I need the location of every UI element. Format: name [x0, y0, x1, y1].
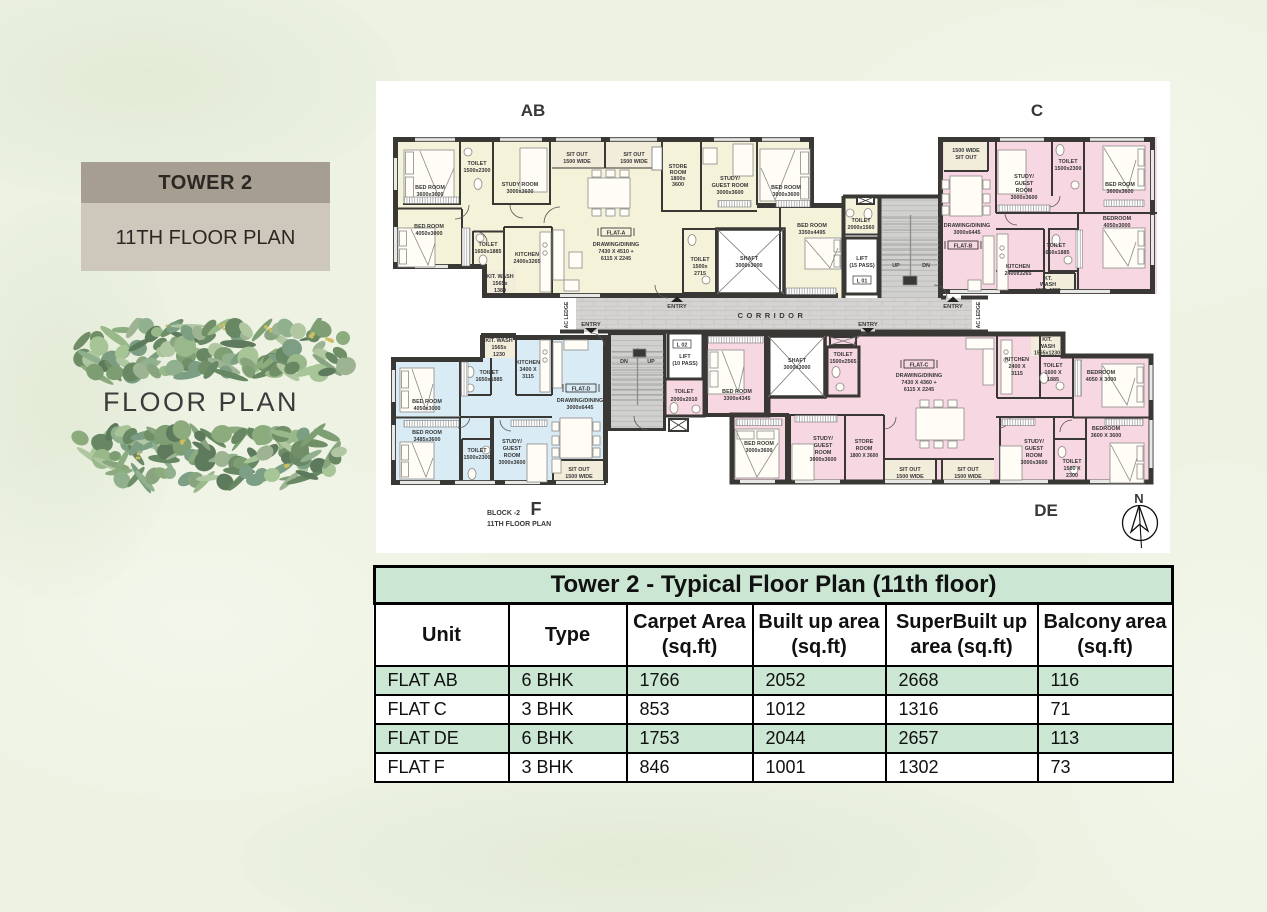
svg-text:TOILET: TOILET: [833, 352, 853, 358]
svg-text:3115: 3115: [1011, 371, 1023, 377]
svg-text:2000x2010: 2000x2010: [671, 397, 698, 403]
svg-text:3300x4345: 3300x4345: [724, 396, 751, 402]
svg-text:3000x3600: 3000x3600: [507, 189, 534, 195]
svg-text:ENTRY: ENTRY: [667, 304, 687, 310]
svg-text:1500 X: 1500 X: [1063, 466, 1080, 472]
svg-text:TOILET: TOILET: [690, 257, 710, 263]
svg-text:3000x6445: 3000x6445: [954, 230, 981, 236]
svg-text:TOILET: TOILET: [479, 370, 499, 376]
svg-text:3600: 3600: [672, 182, 684, 188]
svg-text:ROOM: ROOM: [856, 446, 873, 452]
svg-text:STUDY/: STUDY/: [720, 176, 740, 182]
svg-text:1500 WIDE: 1500 WIDE: [620, 159, 648, 165]
svg-text:STORE: STORE: [855, 439, 874, 445]
svg-text:ROOM: ROOM: [1016, 188, 1033, 194]
svg-text:TOILET: TOILET: [1058, 159, 1078, 165]
svg-text:1650x1885: 1650x1885: [476, 377, 503, 383]
svg-text:4050x3000: 4050x3000: [414, 406, 441, 412]
svg-text:STUDY/: STUDY/: [502, 439, 522, 445]
svg-text:2400x3265: 2400x3265: [1005, 271, 1032, 277]
svg-text:C: C: [1031, 101, 1043, 120]
svg-text:3115: 3115: [522, 374, 534, 380]
svg-text:3350x4495: 3350x4495: [799, 230, 826, 236]
svg-text:BED ROOM: BED ROOM: [414, 224, 444, 230]
svg-text:SIT OUT: SIT OUT: [899, 467, 921, 473]
svg-text:TOILET: TOILET: [1046, 243, 1066, 249]
svg-text:BLOCK -2: BLOCK -2: [487, 510, 520, 517]
svg-text:1500x2300: 1500x2300: [464, 455, 491, 461]
svg-text:1565x: 1565x: [492, 345, 507, 351]
svg-text:WASH: WASH: [1039, 344, 1055, 350]
svg-text:UP: UP: [892, 263, 900, 269]
svg-text:1885: 1885: [1047, 377, 1059, 383]
svg-text:1650x1885: 1650x1885: [1043, 250, 1070, 256]
svg-text:AC LEDGE: AC LEDGE: [976, 301, 982, 328]
svg-text:GUEST: GUEST: [503, 446, 522, 452]
svg-text:STUDY ROOM: STUDY ROOM: [502, 182, 539, 188]
svg-text:1565x1230: 1565x1230: [1034, 351, 1060, 357]
svg-text:3600x3600: 3600x3600: [1107, 189, 1134, 195]
svg-text:3000x3000: 3000x3000: [736, 263, 763, 269]
svg-text:1500x2300: 1500x2300: [1055, 166, 1082, 172]
svg-text:TOILET: TOILET: [478, 242, 498, 248]
svg-text:STUDY/: STUDY/: [813, 436, 833, 442]
svg-text:3400 X: 3400 X: [519, 367, 536, 373]
svg-text:1650x1885: 1650x1885: [475, 249, 502, 255]
svg-text:DN: DN: [620, 359, 628, 365]
svg-text:TOILET: TOILET: [1043, 363, 1063, 369]
svg-text:STUDY/: STUDY/: [1014, 174, 1034, 180]
svg-text:BEDROOM: BEDROOM: [1092, 426, 1121, 432]
svg-text:FLAT-B: FLAT-B: [954, 244, 973, 250]
svg-text:DRAWING/DINING: DRAWING/DINING: [557, 398, 603, 404]
svg-text:BED ROOM: BED ROOM: [1105, 182, 1135, 188]
svg-text:ENTRY: ENTRY: [581, 322, 601, 328]
svg-text:ROOM: ROOM: [815, 450, 832, 456]
svg-text:1600 X: 1600 X: [1044, 370, 1061, 376]
svg-text:KITCHEN: KITCHEN: [1006, 264, 1030, 270]
svg-text:3000x3600: 3000x3600: [717, 190, 744, 196]
svg-text:KITCHEN: KITCHEN: [515, 252, 539, 258]
svg-text:TOILET: TOILET: [467, 161, 487, 167]
svg-text:3000x3600: 3000x3600: [773, 192, 800, 198]
svg-text:2400x3265: 2400x3265: [514, 259, 541, 265]
svg-text:BEDROOM: BEDROOM: [1087, 370, 1116, 376]
svg-text:3000x6445: 3000x6445: [567, 405, 594, 411]
svg-text:BED ROOM: BED ROOM: [412, 399, 442, 405]
svg-text:1500 WIDE: 1500 WIDE: [952, 148, 980, 154]
svg-text:1500x2565: 1500x2565: [830, 359, 857, 365]
svg-text:DRAWING/DINING: DRAWING/DINING: [896, 373, 942, 379]
svg-text:ROOM: ROOM: [1026, 453, 1043, 459]
svg-text:BED ROOM: BED ROOM: [722, 389, 752, 395]
svg-text:SHAFT: SHAFT: [740, 256, 759, 262]
svg-text:GUEST: GUEST: [1025, 446, 1044, 452]
svg-text:DRAWING/DINING: DRAWING/DINING: [944, 223, 990, 229]
svg-text:ENTRY: ENTRY: [943, 304, 963, 310]
svg-text:FLAT-D: FLAT-D: [572, 387, 591, 393]
svg-text:CORRIDOR: CORRIDOR: [738, 311, 807, 320]
svg-text:LIFT: LIFT: [679, 354, 691, 360]
svg-text:1800 X 3600: 1800 X 3600: [850, 453, 879, 459]
svg-text:3000x3600: 3000x3600: [499, 460, 526, 466]
svg-text:ROOM: ROOM: [504, 453, 521, 459]
svg-text:TOILET: TOILET: [851, 218, 871, 224]
svg-text:1500x2300: 1500x2300: [464, 168, 491, 174]
svg-text:DN: DN: [922, 263, 930, 269]
svg-text:KIT. WASH: KIT. WASH: [485, 338, 512, 344]
svg-text:2400 X: 2400 X: [1008, 364, 1025, 370]
svg-text:7430 X 4360 +: 7430 X 4360 +: [901, 380, 936, 386]
svg-text:SIT OUT: SIT OUT: [566, 152, 588, 158]
svg-text:SIT OUT: SIT OUT: [568, 467, 590, 473]
svg-text:1500 WIDE: 1500 WIDE: [896, 474, 924, 480]
svg-text:4050x3000: 4050x3000: [416, 231, 443, 237]
svg-text:BEDROOM: BEDROOM: [1103, 216, 1132, 222]
svg-text:KITCHEN: KITCHEN: [1005, 357, 1029, 363]
svg-text:BED ROOM: BED ROOM: [744, 441, 774, 447]
svg-text:3600 X 3600: 3600 X 3600: [1091, 433, 1122, 439]
svg-text:KITCHEN: KITCHEN: [516, 360, 540, 366]
svg-text:1500 WIDE: 1500 WIDE: [563, 159, 591, 165]
svg-text:L 01: L 01: [857, 279, 868, 285]
svg-text:F: F: [531, 499, 542, 519]
svg-text:SIT OUT: SIT OUT: [623, 152, 645, 158]
svg-text:2300: 2300: [1066, 473, 1078, 479]
svg-text:L 02: L 02: [677, 343, 688, 349]
svg-text:GUEST: GUEST: [814, 443, 833, 449]
svg-text:3000x3600: 3000x3600: [746, 448, 773, 454]
svg-text:4050 X 3000: 4050 X 3000: [1086, 377, 1117, 383]
svg-text:DE: DE: [1034, 501, 1058, 520]
svg-text:7430 X 4510 +: 7430 X 4510 +: [598, 249, 633, 255]
svg-text:AC LEDGE: AC LEDGE: [564, 301, 570, 328]
svg-text:2000x1560: 2000x1560: [848, 225, 875, 231]
svg-text:UP: UP: [647, 359, 655, 365]
svg-text:11TH FLOOR PLAN: 11TH FLOOR PLAN: [487, 521, 551, 528]
svg-text:STUDY/: STUDY/: [1024, 439, 1044, 445]
svg-text:BED ROOM: BED ROOM: [412, 430, 442, 436]
svg-text:TOILET: TOILET: [467, 448, 487, 454]
svg-text:BED ROOM: BED ROOM: [797, 223, 827, 229]
svg-text:1585x1380: 1585x1380: [1035, 288, 1060, 294]
svg-text:3600x3600: 3600x3600: [417, 192, 444, 198]
svg-text:1565x: 1565x: [493, 281, 508, 287]
svg-text:DRAWING/DINING: DRAWING/DINING: [593, 242, 639, 248]
svg-text:AB: AB: [521, 101, 546, 120]
svg-text:TOILET: TOILET: [1062, 459, 1082, 465]
svg-text:4050x3000: 4050x3000: [1104, 223, 1131, 229]
svg-text:6115 X 2245: 6115 X 2245: [904, 387, 934, 393]
svg-text:KIT.: KIT.: [1042, 337, 1052, 343]
svg-text:(10 PASS): (10 PASS): [672, 361, 698, 367]
svg-text:GUEST: GUEST: [1015, 181, 1034, 187]
svg-text:1380: 1380: [494, 288, 506, 294]
svg-text:SHAFT: SHAFT: [788, 358, 807, 364]
svg-text:1500 WIDE: 1500 WIDE: [565, 474, 593, 480]
svg-text:TOILET: TOILET: [674, 389, 694, 395]
svg-text:1230: 1230: [493, 352, 505, 358]
svg-text:3000x3600: 3000x3600: [810, 457, 837, 463]
svg-text:N: N: [1134, 491, 1143, 506]
svg-text:BED ROOM: BED ROOM: [771, 185, 801, 191]
svg-text:GUEST ROOM: GUEST ROOM: [712, 183, 749, 189]
svg-text:1500 WIDE: 1500 WIDE: [954, 474, 982, 480]
svg-text:SIT OUT: SIT OUT: [957, 467, 979, 473]
svg-text:3000x3600: 3000x3600: [1011, 195, 1038, 201]
svg-text:KIT. WASH: KIT. WASH: [486, 274, 513, 280]
svg-text:LIFT: LIFT: [856, 256, 868, 262]
svg-text:FLAT-A: FLAT-A: [607, 231, 626, 237]
svg-text:3485x3600: 3485x3600: [414, 437, 441, 443]
svg-text:1500x: 1500x: [693, 264, 708, 270]
svg-text:3000x3000: 3000x3000: [784, 365, 811, 371]
svg-text:3000x3600: 3000x3600: [1021, 460, 1048, 466]
svg-text:ENTRY: ENTRY: [858, 322, 878, 328]
svg-text:BED ROOM: BED ROOM: [415, 185, 445, 191]
svg-text:FLAT-C: FLAT-C: [910, 363, 929, 369]
svg-text:(15 PASS): (15 PASS): [849, 263, 875, 269]
svg-text:SIT OUT: SIT OUT: [955, 155, 977, 161]
svg-text:6115 X 2245: 6115 X 2245: [601, 256, 631, 262]
svg-text:2715: 2715: [694, 271, 706, 277]
